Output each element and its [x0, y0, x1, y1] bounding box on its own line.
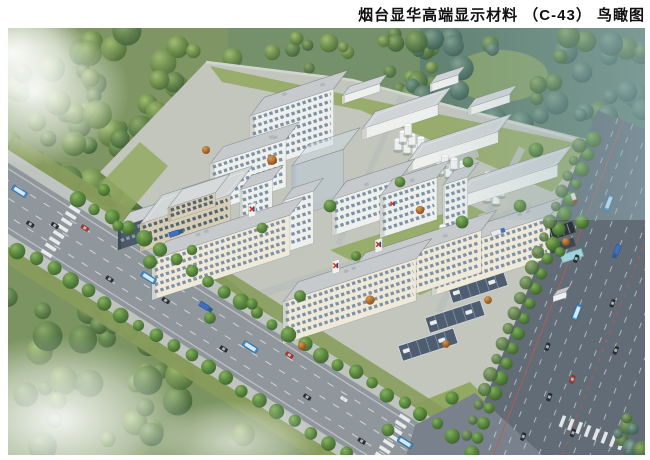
aerial-rendering — [0, 0, 650, 460]
autumn-shrub — [298, 342, 306, 350]
page: 烟台显华高端显示材料 （C-43） 鸟瞰图 — [0, 0, 650, 460]
autumn-shrub — [202, 146, 210, 154]
scene-root — [0, 0, 650, 460]
autumn-shrub — [484, 296, 492, 304]
autumn-shrub — [562, 238, 570, 246]
autumn-shrub — [365, 295, 374, 304]
autumn-shrub — [416, 206, 425, 215]
rendering-canvas — [0, 0, 650, 460]
distance-haze — [428, 28, 645, 220]
autumn-shrub — [267, 155, 277, 165]
title-bar: 烟台显华高端显示材料 （C-43） 鸟瞰图 — [0, 0, 650, 28]
page-title: 烟台显华高端显示材料 （C-43） 鸟瞰图 — [358, 4, 650, 25]
autumn-shrub — [442, 340, 450, 348]
